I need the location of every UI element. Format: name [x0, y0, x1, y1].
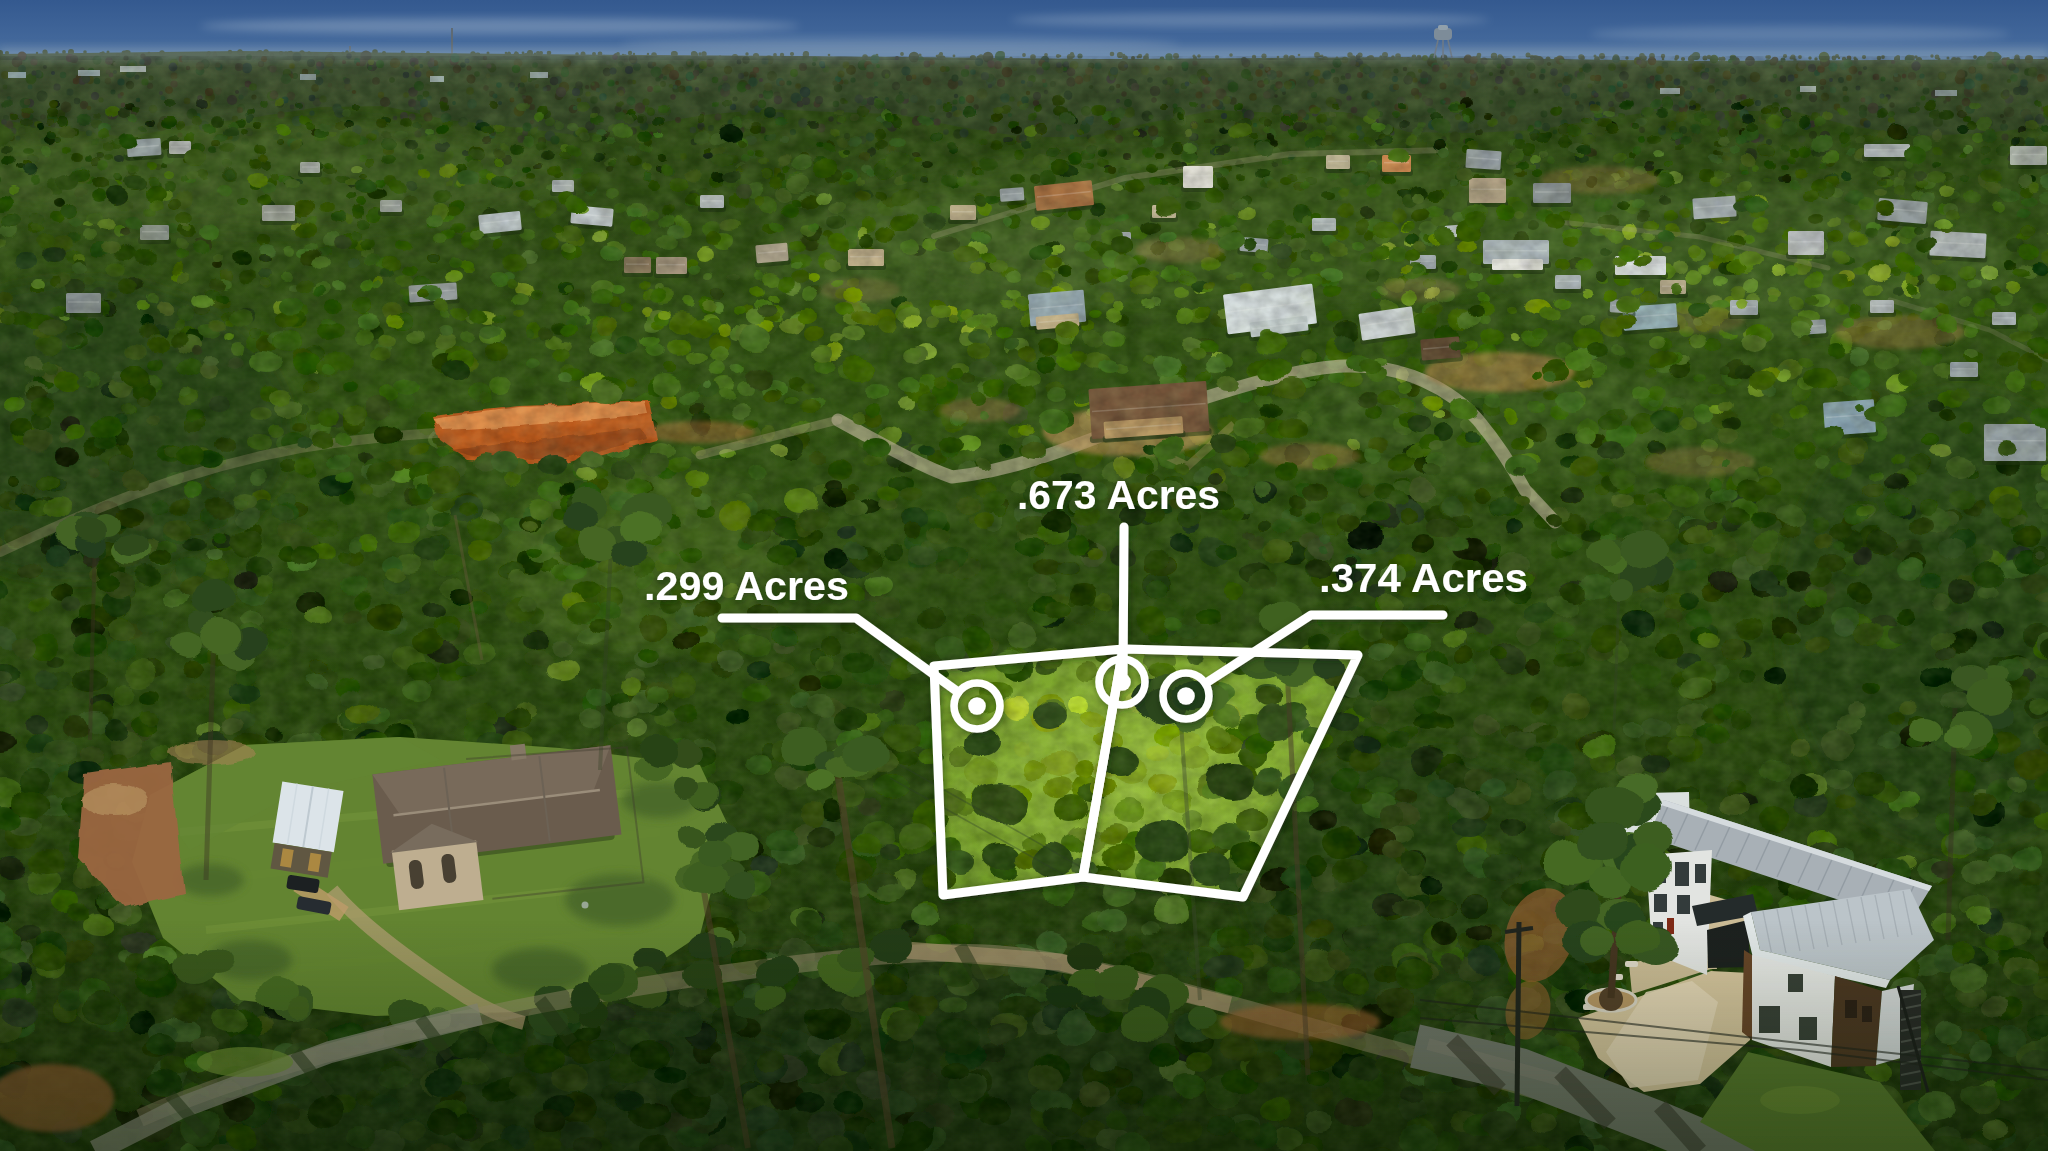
svg-text:.299 Acres: .299 Acres	[644, 563, 849, 609]
svg-text:.673 Acres: .673 Acres	[1017, 472, 1220, 518]
svg-text:.374 Acres: .374 Acres	[1319, 555, 1528, 601]
